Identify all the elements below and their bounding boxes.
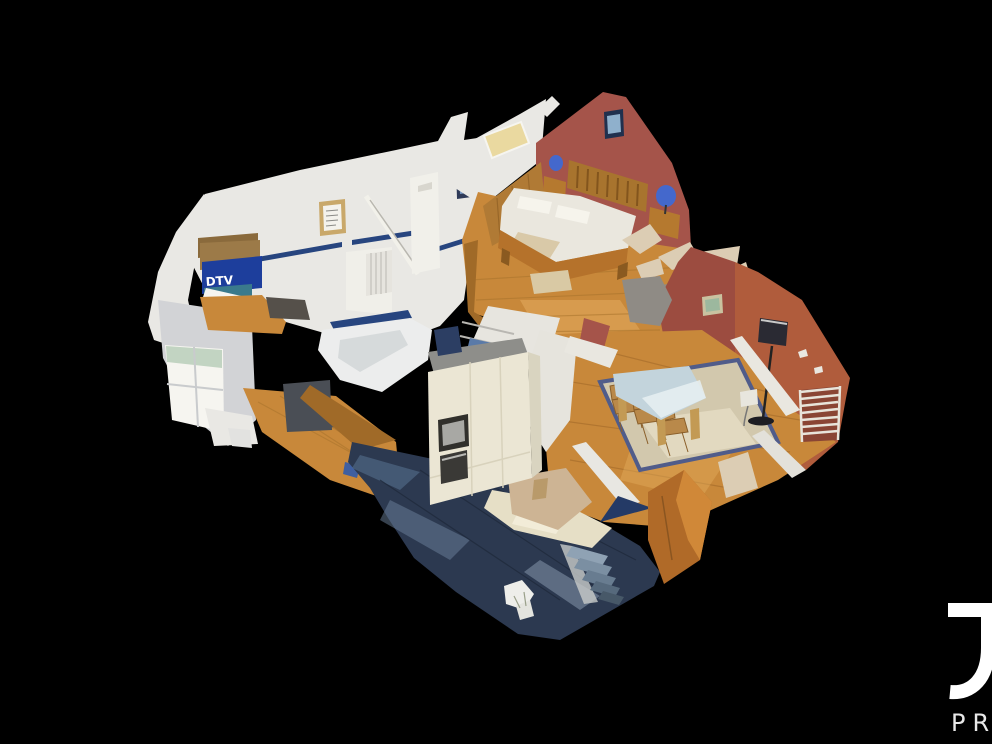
lamp-left [549, 155, 563, 171]
framed-text-picture [319, 199, 346, 236]
radiator [800, 386, 840, 442]
radiator-bathroom [366, 250, 392, 296]
microwave [438, 414, 469, 452]
bedroom-picture [604, 109, 624, 139]
kitchen-cabinets [428, 326, 542, 505]
oven [440, 450, 468, 484]
dollhouse-viewport[interactable]: DTV [0, 0, 992, 744]
logo-subtext: PR [951, 709, 992, 737]
logo-letter-j [948, 610, 992, 692]
dollhouse-scene: DTV [0, 0, 992, 744]
dtv-box-label: DTV [205, 273, 234, 289]
grey-mat [266, 297, 310, 320]
wicker-chair [530, 270, 572, 294]
counter-appliance [434, 326, 462, 356]
bathtub [318, 310, 432, 392]
logo: PR [948, 610, 992, 737]
dining-picture [702, 294, 723, 316]
white-door [410, 172, 440, 274]
lamp-right [656, 185, 676, 207]
